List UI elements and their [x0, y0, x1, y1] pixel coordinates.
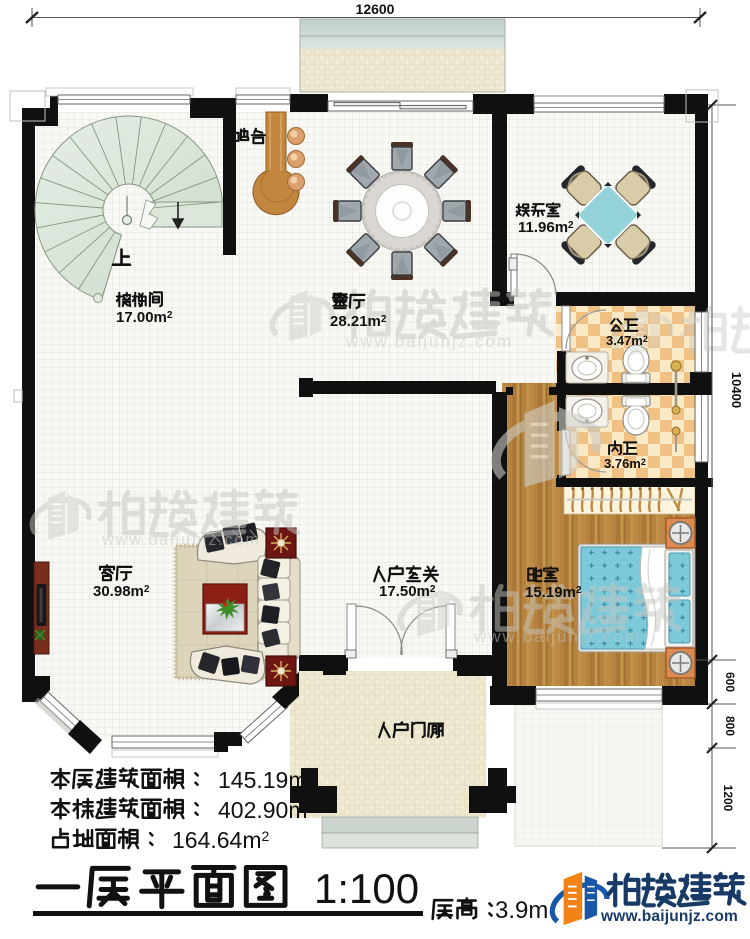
svg-text:15.19m2: 15.19m2 — [525, 584, 582, 601]
svg-text:www.baijunjz.com: www.baijunjz.com — [101, 531, 261, 549]
svg-text:10400: 10400 — [729, 372, 744, 408]
svg-text:1:100: 1:100 — [314, 865, 419, 912]
svg-text:402.90m2: 402.90m2 — [218, 797, 316, 823]
svg-text:145.19m2: 145.19m2 — [218, 767, 316, 793]
svg-text:12600: 12600 — [356, 1, 395, 17]
svg-text:800: 800 — [723, 716, 737, 736]
svg-text:11.96m2: 11.96m2 — [518, 219, 574, 236]
svg-text:3.47m2: 3.47m2 — [606, 333, 648, 348]
svg-text:1200: 1200 — [721, 785, 735, 812]
svg-text:3.9m: 3.9m — [495, 897, 548, 924]
svg-text:30.98m2: 30.98m2 — [93, 583, 150, 600]
svg-text:www.baijunjz.com: www.baijunjz.com — [600, 908, 738, 925]
svg-text:3.76m2: 3.76m2 — [604, 456, 646, 471]
svg-text:17.00m2: 17.00m2 — [116, 309, 173, 326]
svg-text:www.baijunjz.com: www.baijunjz.com — [345, 332, 513, 351]
svg-text:600: 600 — [723, 672, 737, 692]
svg-text:164.64m2: 164.64m2 — [172, 827, 270, 853]
svg-text:www.baijunjz.com: www.baijunjz.com — [473, 627, 641, 646]
svg-text:28.21m2: 28.21m2 — [330, 313, 387, 330]
svg-text:17.50m2: 17.50m2 — [379, 583, 436, 600]
